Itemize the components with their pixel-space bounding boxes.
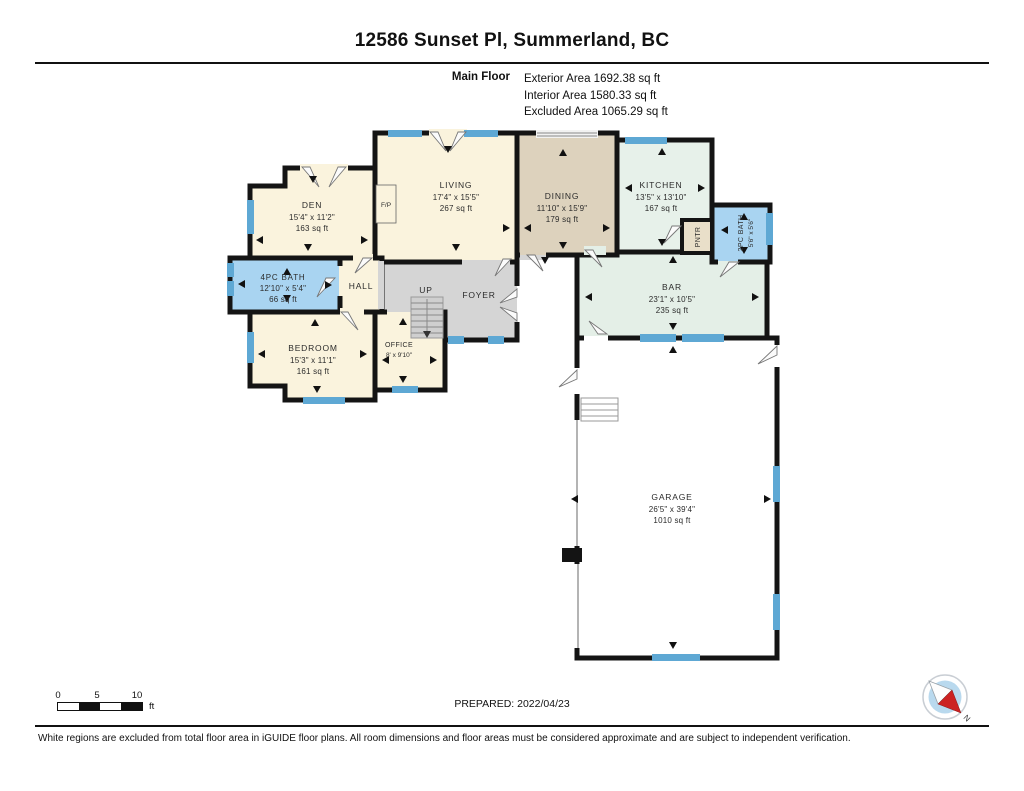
footer-divider xyxy=(35,725,989,727)
fireplace: F/P xyxy=(376,185,396,223)
living-name: LIVING xyxy=(440,180,473,190)
kitchen-area: 167 sq ft xyxy=(645,204,678,213)
living-dims: 17'4" x 15'5" xyxy=(433,193,479,202)
floorplan-page: 12586 Sunset Pl, Summerland, BC Main Flo… xyxy=(0,0,1024,791)
garage-area: 1010 sq ft xyxy=(653,516,691,525)
bath2pc-name: 2PC BATH xyxy=(738,215,745,252)
bedroom-area: 161 sq ft xyxy=(297,367,330,376)
bar-name: BAR xyxy=(662,282,682,292)
bedroom-name: BEDROOM xyxy=(288,343,338,353)
office-dims: 8' x 9'10" xyxy=(386,352,413,359)
office-name: OFFICE xyxy=(385,342,413,349)
up-label: UP xyxy=(419,285,432,295)
stairs-up xyxy=(411,297,443,338)
pantry-label: PNTR xyxy=(695,227,702,248)
foyer-label: FOYER xyxy=(462,290,495,300)
dining-name: DINING xyxy=(545,191,580,201)
den-dims: 15'4" x 11'2" xyxy=(289,213,335,222)
bath4pc-name: 4PC BATH xyxy=(261,273,306,282)
bath2pc-dims: 5'6" x 5'6" xyxy=(748,218,755,247)
room-shapes xyxy=(230,133,777,658)
sliding-door xyxy=(536,130,598,138)
bath4pc-area: 66 sq ft xyxy=(269,295,297,304)
living-area: 267 sq ft xyxy=(440,204,473,213)
kitchen-name: KITCHEN xyxy=(640,180,683,190)
garage-dims: 26'5" x 39'4" xyxy=(649,505,695,514)
hall-label: HALL xyxy=(349,281,373,291)
den-area: 163 sq ft xyxy=(296,224,329,233)
prepared-date: PREPARED: 2022/04/23 xyxy=(0,698,1024,710)
floorplan-drawing: F/P DEN 15'4" x 11'2" 163 sq ft LIVING 1… xyxy=(0,0,1024,791)
disclaimer-text: White regions are excluded from total fl… xyxy=(38,733,851,744)
dining-area: 179 sq ft xyxy=(546,215,579,224)
den-name: DEN xyxy=(302,200,322,210)
bedroom-dims: 15'3" x 11'1" xyxy=(290,356,336,365)
stairs-garage xyxy=(581,398,618,421)
garage-name: GARAGE xyxy=(651,492,692,502)
compass-north-label: N xyxy=(962,713,973,724)
bar-dims: 23'1" x 10'5" xyxy=(649,295,695,304)
bath4pc-dims: 12'10" x 5'4" xyxy=(260,284,306,293)
garage-doors xyxy=(562,420,582,648)
kitchen-dims: 13'5" x 13'10" xyxy=(635,193,686,202)
dining-dims: 11'10" x 15'9" xyxy=(537,204,588,213)
fireplace-label: F/P xyxy=(381,202,391,209)
bar-area: 235 sq ft xyxy=(656,306,689,315)
